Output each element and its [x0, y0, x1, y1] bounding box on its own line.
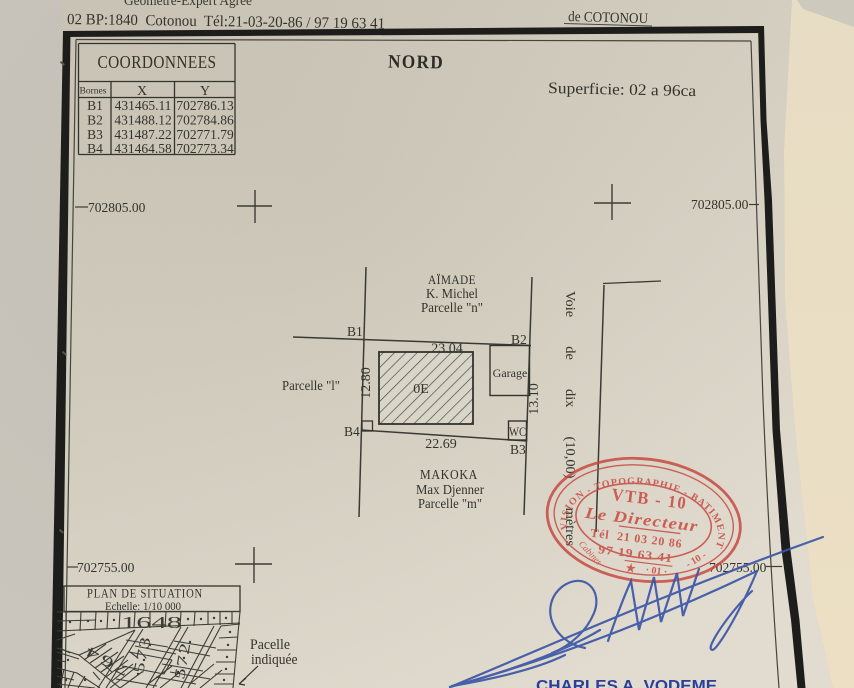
svg-text:431464.58: 431464.58: [114, 141, 172, 156]
svg-text:23.04: 23.04: [431, 342, 463, 357]
svg-text:B3: B3: [87, 127, 103, 142]
svg-text:B2: B2: [87, 113, 103, 128]
svg-text:NORD: NORD: [388, 52, 444, 74]
svg-text:COORDONNEES: COORDONNEES: [98, 52, 217, 72]
svg-text:Garage: Garage: [493, 366, 528, 380]
svg-text:702805.00: 702805.00: [691, 197, 749, 212]
svg-text:PLAN DE SITUATION: PLAN DE SITUATION: [87, 586, 203, 601]
svg-text:Bornes: Bornes: [80, 87, 107, 97]
svg-text:Géomètre-Expert Agréé: Géomètre-Expert Agréé: [124, 0, 252, 9]
svg-text:702805.00: 702805.00: [88, 200, 146, 215]
svg-text:X: X: [137, 84, 147, 99]
svg-text:AÏMADE: AÏMADE: [428, 272, 476, 287]
svg-text:B4: B4: [344, 424, 360, 439]
svg-text:431488.12: 431488.12: [114, 113, 171, 128]
svg-text:Parcelle "l": Parcelle "l": [282, 378, 340, 393]
svg-text:431465.11: 431465.11: [115, 98, 172, 113]
svg-text:22.69: 22.69: [425, 437, 457, 452]
svg-text:702771.79: 702771.79: [176, 127, 234, 142]
svg-text:WC: WC: [509, 425, 526, 439]
svg-text:702786.13: 702786.13: [176, 98, 234, 113]
svg-text:B4: B4: [87, 141, 103, 156]
svg-text:Parcelle "m": Parcelle "m": [418, 496, 482, 511]
svg-text:B2: B2: [511, 332, 527, 347]
svg-text:0E: 0E: [413, 382, 429, 397]
svg-text:702784.86: 702784.86: [176, 113, 234, 128]
svg-text:K. Michel: K. Michel: [426, 286, 478, 301]
svg-text:B1: B1: [87, 98, 103, 113]
svg-text:MAKOKA: MAKOKA: [420, 468, 478, 483]
svg-text:12.80: 12.80: [359, 367, 374, 399]
svg-text:B3: B3: [510, 442, 526, 457]
svg-text:Pacelle: Pacelle: [250, 637, 290, 653]
svg-text:702773.34: 702773.34: [176, 141, 234, 156]
svg-text:B1: B1: [347, 324, 363, 339]
svg-text:Y: Y: [200, 84, 210, 99]
svg-text:indiquée: indiquée: [251, 652, 298, 668]
svg-text:Parcelle "n": Parcelle "n": [421, 300, 483, 315]
svg-text:13.10: 13.10: [527, 383, 542, 415]
svg-text:★: ★: [625, 562, 636, 575]
svg-text:431487.22: 431487.22: [114, 127, 171, 142]
svg-text:702755.00: 702755.00: [77, 560, 135, 575]
svg-text:Superficie: 02 a 96ca: Superficie: 02 a 96ca: [548, 80, 696, 100]
svg-text:CHARLES A. VODEME: CHARLES A. VODEME: [536, 678, 717, 688]
svg-text:1648: 1648: [121, 613, 182, 632]
svg-text:Max Djenner: Max Djenner: [416, 482, 484, 497]
